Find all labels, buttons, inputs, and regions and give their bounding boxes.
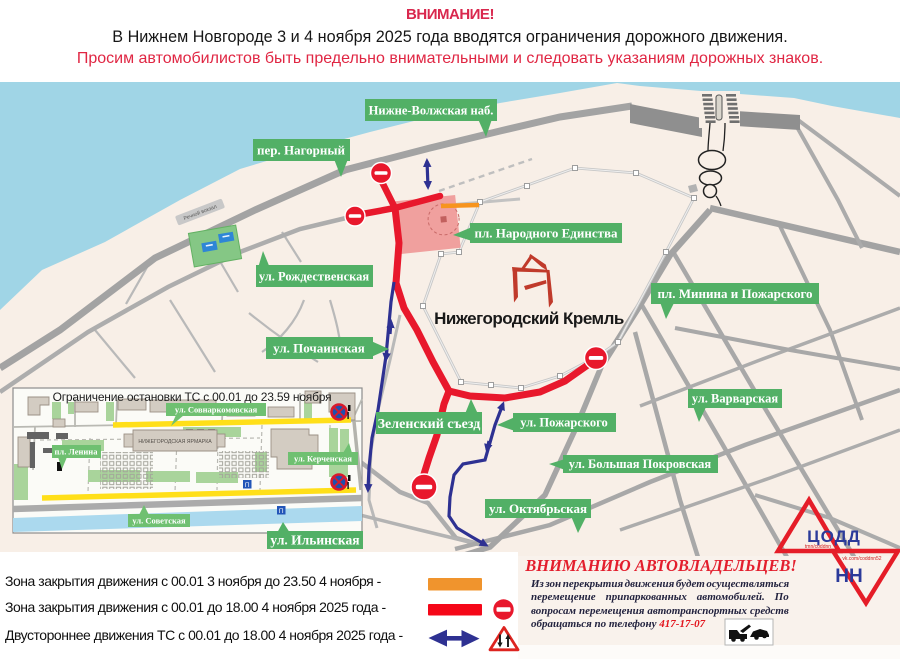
svg-text:Зеленский съезд: Зеленский съезд: [378, 417, 481, 432]
svg-text:ул. Рождественская: ул. Рождественская: [259, 270, 370, 284]
svg-text:vk.com/coddnn52: vk.com/coddnn52: [842, 556, 881, 562]
svg-text:пл. Народного Единства: пл. Народного Единства: [474, 226, 618, 241]
svg-text:Ограничение остановки ТС с 00.: Ограничение остановки ТС с 00.01 до 23.5…: [53, 390, 332, 404]
svg-text:пер. Нагорный: пер. Нагорный: [257, 143, 346, 158]
svg-text:tmn/coddnn: tmn/coddnn: [805, 544, 831, 550]
svg-text:Нижне-Волжская наб.: Нижне-Волжская наб.: [369, 104, 494, 118]
svg-text:Нижегородский Кремль: Нижегородский Кремль: [434, 309, 624, 328]
svg-text:ул. Варварская: ул. Варварская: [692, 392, 779, 406]
svg-text:НН: НН: [835, 566, 862, 587]
svg-text:НИЖЕГОРОДСКАЯ ЯРМАРКА: НИЖЕГОРОДСКАЯ ЯРМАРКА: [138, 439, 212, 445]
svg-text:пл. Минина и Пожарского: пл. Минина и Пожарского: [657, 286, 812, 301]
svg-text:ул. Керченская: ул. Керченская: [294, 454, 352, 464]
svg-text:ул. Пожарского: ул. Пожарского: [520, 416, 608, 430]
svg-text:ул. Почаинская: ул. Почаинская: [273, 341, 365, 356]
svg-text:ул. Ильинская: ул. Ильинская: [270, 533, 359, 548]
svg-text:П: П: [245, 482, 250, 489]
svg-text:ул. Совнаркомовская: ул. Совнаркомовская: [175, 405, 258, 415]
svg-text:П: П: [279, 508, 284, 515]
svg-text:пл. Ленина: пл. Ленина: [55, 447, 99, 457]
svg-text:ул. Советская: ул. Советская: [132, 516, 186, 526]
svg-text:ул. Большая Покровская: ул. Большая Покровская: [569, 457, 712, 471]
svg-text:ул. Октябрьская: ул. Октябрьская: [489, 501, 587, 516]
